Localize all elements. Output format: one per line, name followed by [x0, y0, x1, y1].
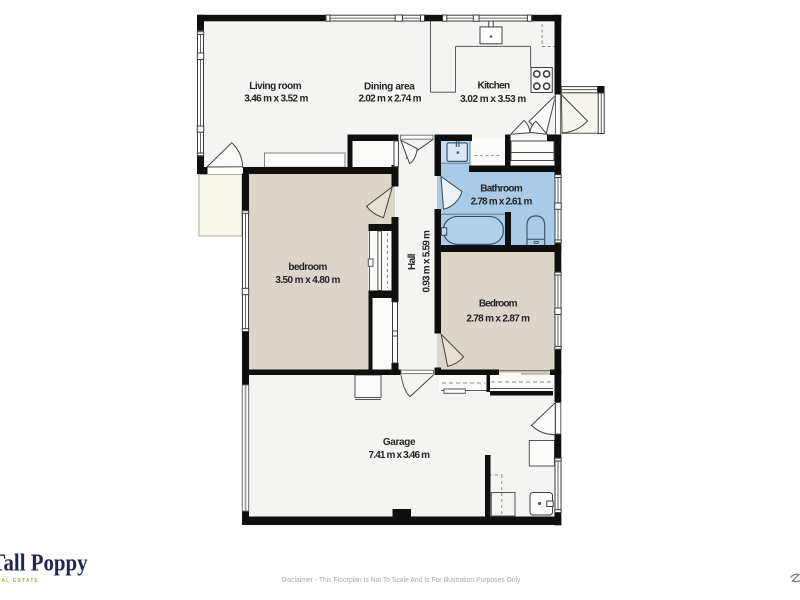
svg-text:REAL ESTATE: REAL ESTATE — [0, 578, 39, 584]
svg-text:Dining area: Dining area — [364, 82, 415, 93]
svg-text:Bedroom: Bedroom — [479, 298, 518, 309]
svg-text:7.41 m x 3.46 m: 7.41 m x 3.46 m — [369, 450, 431, 461]
svg-text:3.02 m x 3.53 m: 3.02 m x 3.53 m — [460, 94, 526, 105]
svg-text:Living room: Living room — [249, 81, 301, 92]
svg-text:Disclaimer - This Floorplan Is: Disclaimer - This Floorplan Is Not To Sc… — [281, 575, 520, 584]
svg-text:0.93 m x 5.59 m: 0.93 m x 5.59 m — [422, 230, 433, 293]
svg-text:3.46 m x 3.52 m: 3.46 m x 3.52 m — [244, 93, 308, 104]
svg-text:Tall Poppy: Tall Poppy — [0, 550, 88, 577]
svg-text:2.78 m x 2.87 m: 2.78 m x 2.87 m — [466, 313, 530, 324]
svg-text:2.78 m x 2.61 m: 2.78 m x 2.61 m — [471, 197, 533, 208]
svg-text:Bathroom: Bathroom — [480, 183, 523, 194]
svg-text:bedroom: bedroom — [288, 262, 327, 273]
svg-text:Hall: Hall — [407, 253, 418, 270]
svg-text:2.02 m x 2.74 m: 2.02 m x 2.74 m — [359, 94, 422, 105]
svg-text:3.50 m x 4.80 m: 3.50 m x 4.80 m — [275, 275, 340, 286]
svg-text:Garage: Garage — [383, 437, 416, 448]
svg-text:Kitchen: Kitchen — [478, 81, 511, 92]
